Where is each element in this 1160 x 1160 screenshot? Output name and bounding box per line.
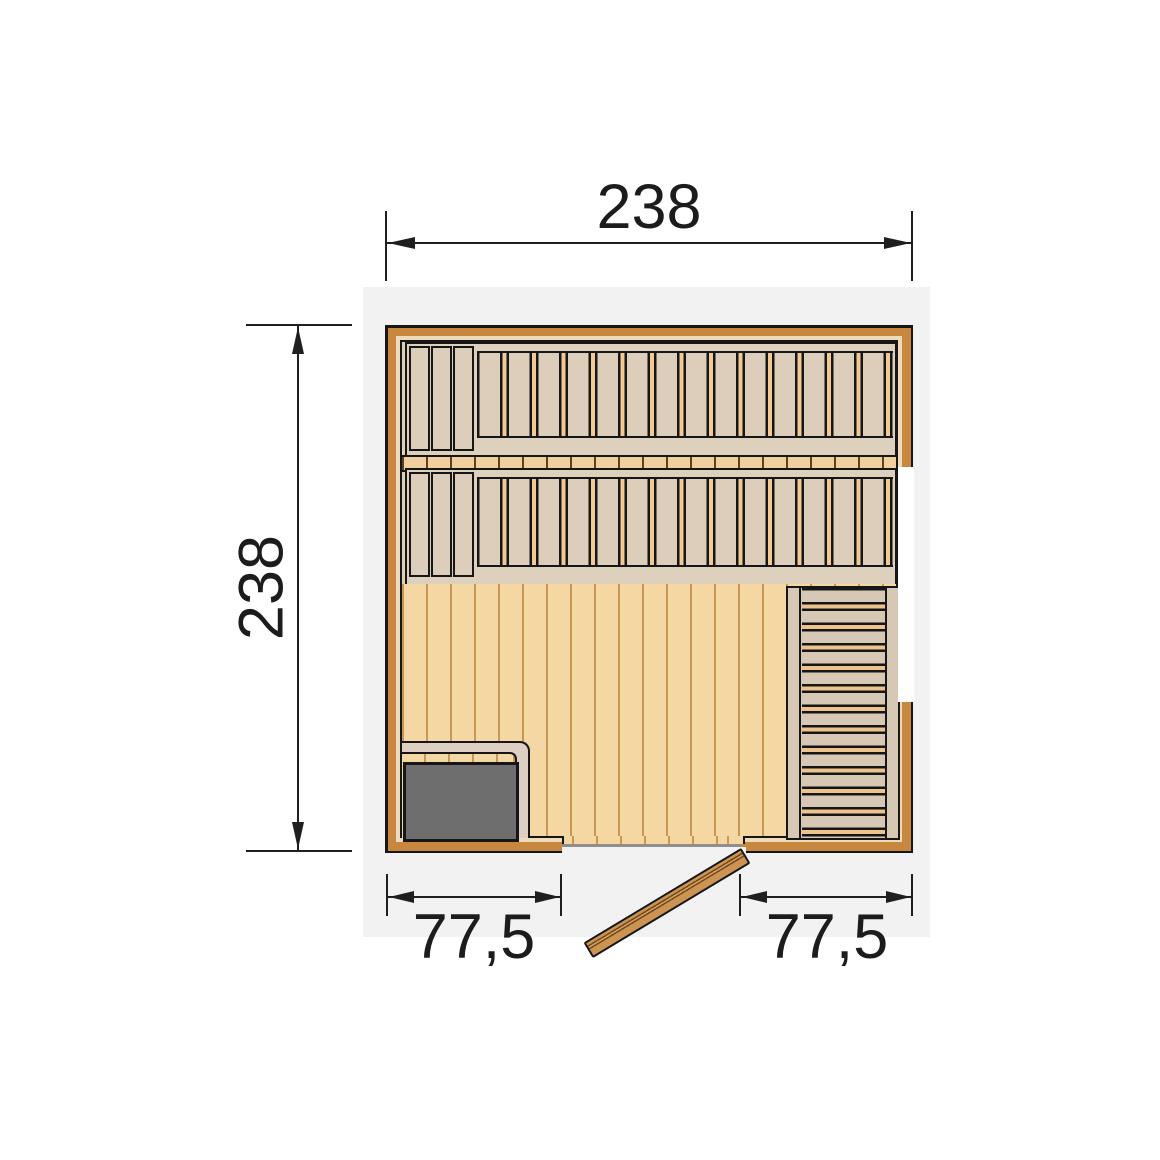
sauna-outline: [385, 325, 913, 853]
arrow-right-icon: [884, 237, 911, 249]
door-opening-floor: [562, 836, 745, 844]
door-left-offset-label: 77,5: [384, 906, 564, 969]
sauna-plan-canvas: 238 238 77,5 77,5: [0, 0, 1160, 1160]
arrow-right-icon: [886, 891, 911, 903]
arrow-left-icon: [389, 891, 414, 903]
step-bench: [786, 586, 900, 840]
step-bench-treads: [802, 588, 885, 838]
arrow-left-icon: [742, 891, 767, 903]
left-depth-label: 238: [231, 498, 294, 678]
door-opening-gap: [562, 847, 746, 856]
lower-bench-headrest-slat: [431, 472, 452, 577]
top-dim-extension-left: [385, 211, 387, 281]
step-bench-left-rail: [788, 588, 801, 838]
left-dim-extension-bottom: [246, 850, 352, 852]
lower-bench-slats: [477, 477, 893, 567]
arrow-down-icon: [292, 822, 304, 849]
upper-bench-headrest-slat: [453, 346, 474, 451]
heater: [403, 762, 519, 842]
arrow-left-icon: [388, 237, 415, 249]
lower-bench: [405, 468, 897, 588]
top-width-label: 238: [559, 176, 739, 239]
right-wall-opening: [898, 467, 914, 702]
lower-bench-headrest-slat: [409, 472, 430, 577]
sauna-interior: [402, 342, 896, 836]
top-dim-extension-right: [911, 211, 913, 281]
upper-bench-slats: [477, 351, 893, 438]
step-bench-right-rail: [885, 588, 898, 838]
left-dim-line: [297, 325, 299, 851]
arrow-right-icon: [535, 891, 560, 903]
top-dim-line: [386, 242, 912, 244]
upper-bench-headrest-slat: [409, 346, 430, 451]
door-right-offset-label: 77,5: [737, 906, 917, 969]
upper-bench-headrest-slat: [431, 346, 452, 451]
upper-bench: [405, 342, 897, 459]
lower-bench-headrest-slat: [453, 472, 474, 577]
arrow-up-icon: [292, 327, 304, 354]
left-dim-extension-top: [246, 324, 352, 326]
